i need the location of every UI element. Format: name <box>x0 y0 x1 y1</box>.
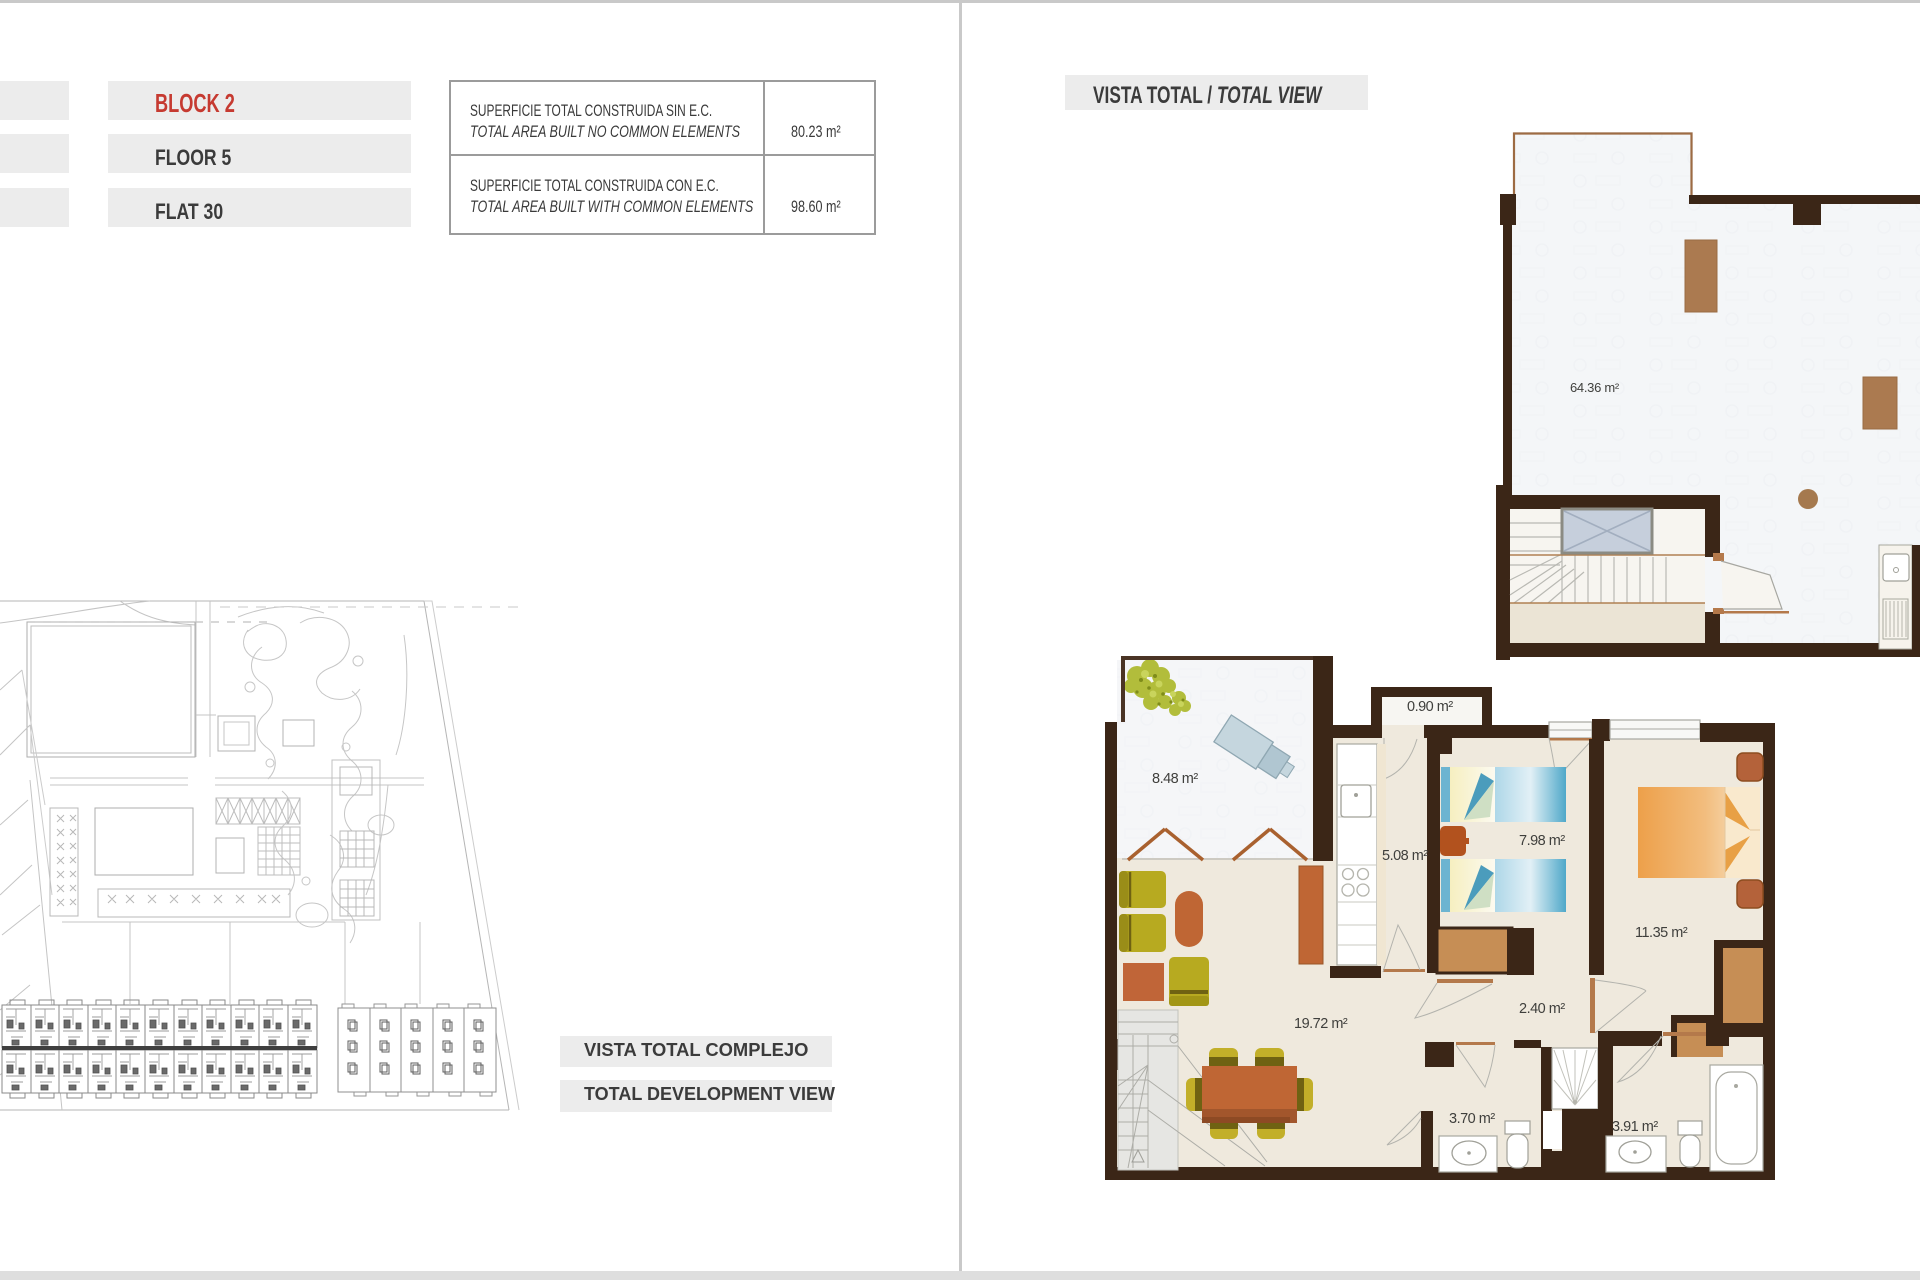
svg-text:11.35 m²: 11.35 m² <box>1635 925 1688 941</box>
svg-text:2.40 m²: 2.40 m² <box>1519 1001 1565 1017</box>
svg-text:0.90 m²: 0.90 m² <box>1407 699 1453 715</box>
svg-text:3.91 m²: 3.91 m² <box>1612 1119 1658 1135</box>
svg-text:8.48 m²: 8.48 m² <box>1152 771 1198 787</box>
svg-text:7.98 m²: 7.98 m² <box>1519 833 1565 849</box>
svg-text:19.72 m²: 19.72 m² <box>1294 1016 1348 1032</box>
svg-text:3.70 m²: 3.70 m² <box>1449 1111 1495 1127</box>
svg-text:5.08 m²: 5.08 m² <box>1382 848 1428 864</box>
svg-text:64.36 m²: 64.36 m² <box>1570 380 1620 395</box>
